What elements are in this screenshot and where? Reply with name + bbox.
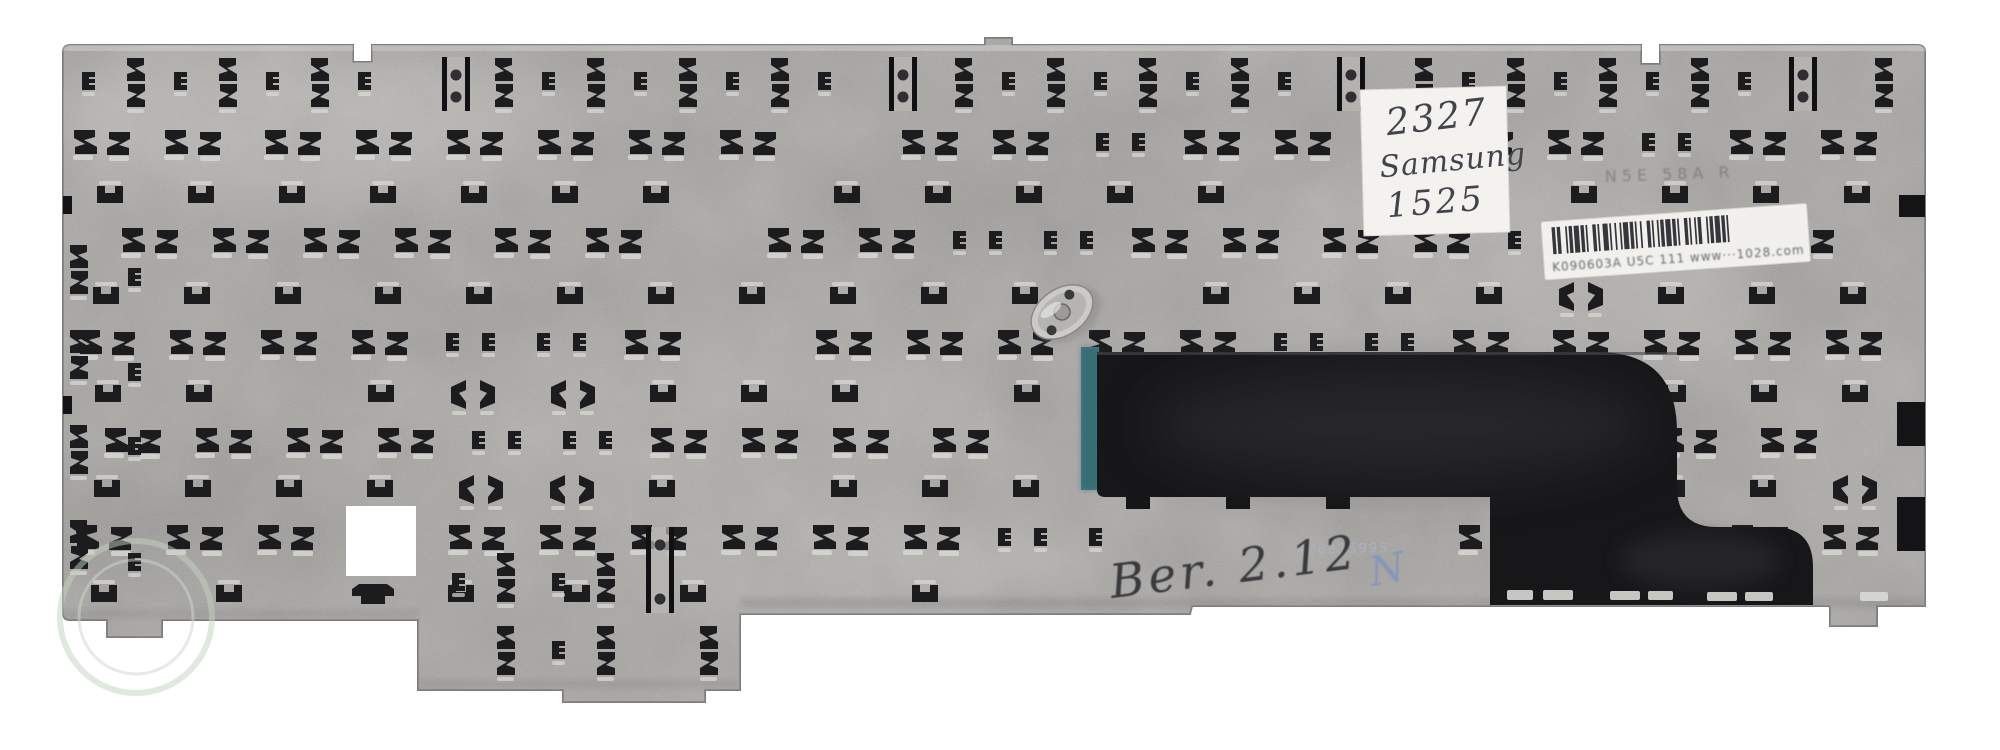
handwritten-sticker: 2327 Samsung 1525: [1360, 86, 1529, 236]
edge-notch: [1897, 497, 1925, 551]
slot-bracket: [1789, 57, 1817, 111]
slot-bracket: [889, 57, 917, 111]
keyboard-photo: N5E 58A R K090603A U5C 111 www···1028.co…: [0, 0, 2000, 750]
sticker-line-3: 1525: [1385, 179, 1486, 227]
slot-bracket: [442, 57, 470, 111]
edge-notch: [1899, 195, 1925, 217]
slot-bracket: [646, 527, 674, 613]
scene-svg: N5E 58A R K090603A U5C 111 www···1028.co…: [0, 0, 2000, 750]
edge-notch: [1897, 402, 1925, 446]
plate-notch-cutout: [346, 506, 416, 576]
edge-notch: [63, 196, 72, 214]
edge-notch: [63, 396, 72, 414]
